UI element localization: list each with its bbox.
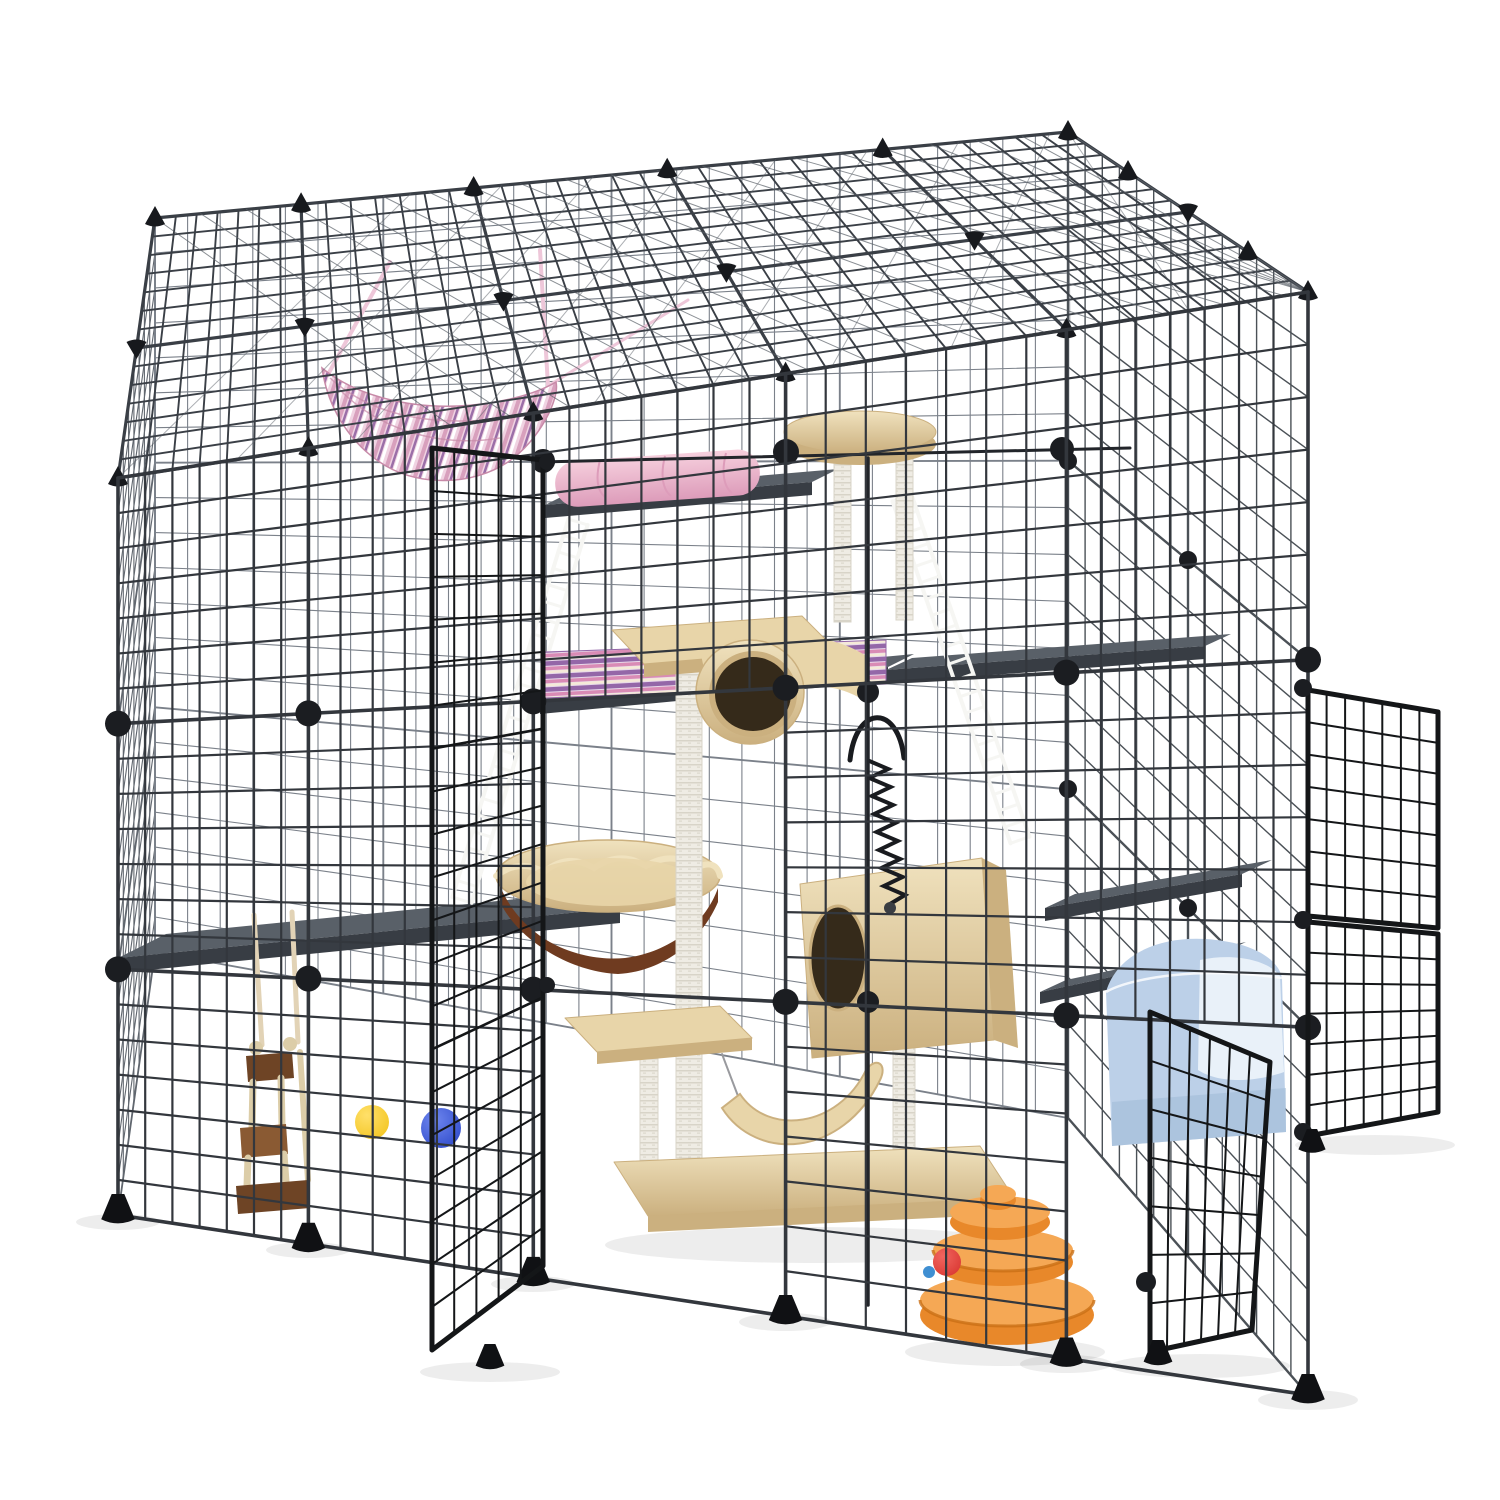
right-doors bbox=[1294, 679, 1438, 1153]
right-wall-grid bbox=[1068, 132, 1308, 1395]
scene-canvas bbox=[0, 0, 1500, 1500]
cat-cage-illustration bbox=[0, 0, 1500, 1500]
product-photo-cat-cage bbox=[0, 0, 1500, 1500]
